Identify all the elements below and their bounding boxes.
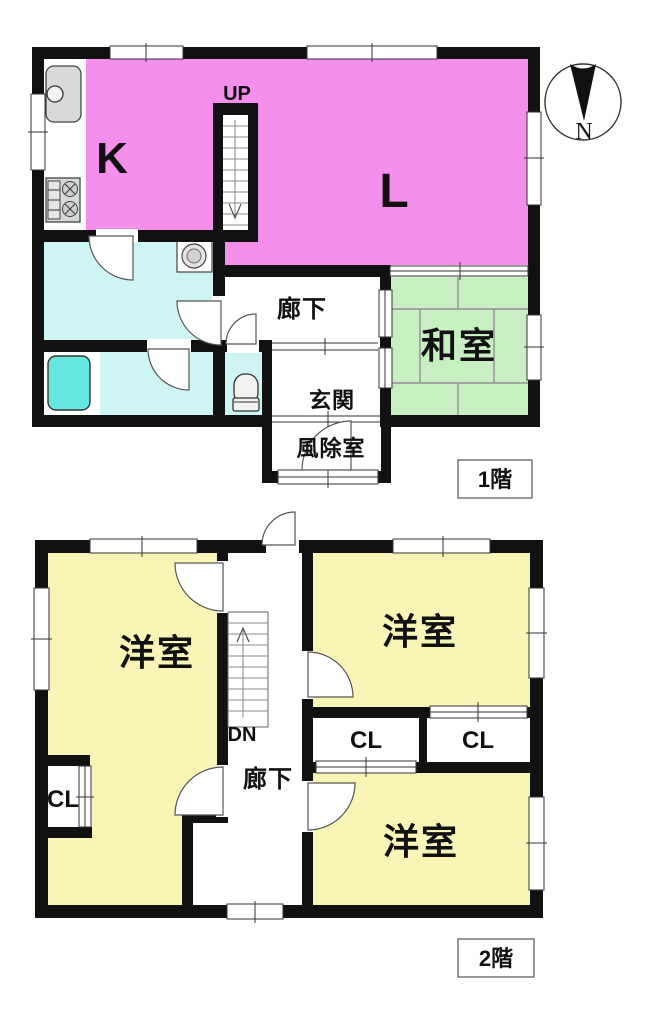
room-label-japanese: 和室: [421, 325, 497, 366]
room-label-living: L: [379, 165, 408, 218]
stairs-down-icon: [228, 612, 268, 727]
floor1-label: 1階: [478, 467, 512, 492]
floor1-plan: K L 和室 廊下 玄関 風除室 UP 1階: [28, 43, 544, 498]
floor-plan-drawing: K L 和室 廊下 玄関 風除室 UP 1階 N: [0, 0, 652, 1024]
stove-icon: [46, 178, 80, 222]
floor2-plan: 洋室 洋室 洋室 廊下 DN CL CL CL 2階: [31, 512, 547, 977]
stairs-up-icon: [223, 115, 248, 230]
room-living-top-strip: [213, 59, 528, 103]
room-label-entrance: 玄関: [309, 388, 355, 413]
floor1-label-box: 1階: [458, 460, 532, 498]
floor2-label-box: 2階: [458, 939, 534, 977]
room-label-western-bottom-right: 洋室: [383, 821, 459, 862]
room-label-windbreak: 風除室: [296, 436, 365, 461]
floor-plan-page: K L 和室 廊下 玄関 風除室 UP 1階 N: [0, 0, 652, 1024]
room-living-lower-strip: [223, 242, 528, 265]
room-label-hallway-f2: 廊下: [243, 765, 293, 793]
closet-label-middle: CL: [350, 727, 382, 754]
toilet-icon: [233, 374, 259, 411]
stairs-down-label: DN: [228, 724, 257, 746]
bathtub-icon: [44, 352, 100, 415]
washing-machine-icon: [177, 241, 212, 272]
stairs-up-label: UP: [223, 83, 251, 105]
closet-label-right: CL: [462, 727, 494, 754]
sink-icon: [46, 66, 81, 122]
hallway-floor-patch: [193, 820, 303, 908]
room-label-kitchen: K: [96, 134, 128, 183]
compass-icon: N: [545, 64, 621, 145]
room-label-western-top-right: 洋室: [382, 611, 458, 652]
closet-label-left: CL: [47, 786, 79, 813]
room-label-western-left: 洋室: [119, 632, 195, 673]
floor2-label: 2階: [479, 946, 513, 971]
room-label-hallway-f1: 廊下: [277, 295, 327, 323]
compass-north-label: N: [575, 119, 592, 145]
